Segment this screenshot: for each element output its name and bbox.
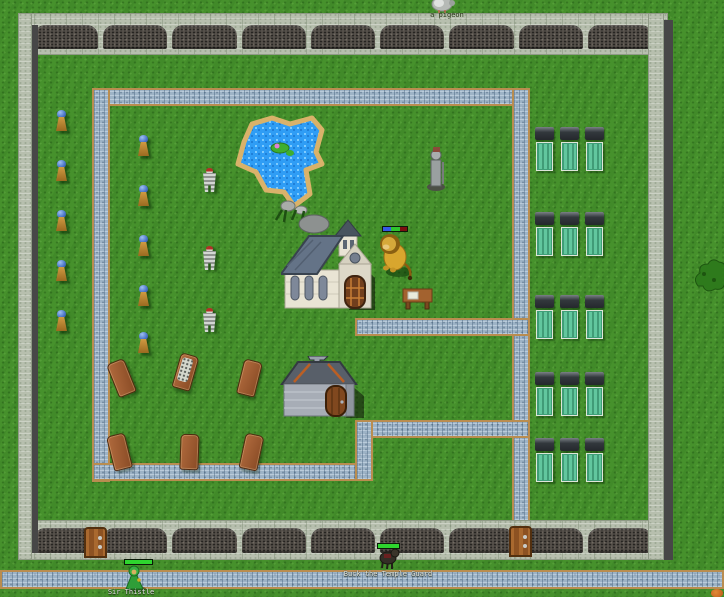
player-face	[132, 570, 137, 575]
npc-saddle	[384, 554, 391, 558]
bed-sprite[interactable]	[559, 438, 580, 483]
lion-paw	[383, 266, 389, 271]
lion-sprite[interactable]	[376, 228, 418, 282]
skeleton-warrior-sprite[interactable]	[202, 308, 217, 332]
coffin-open-sprite[interactable]	[171, 352, 199, 392]
coffin-sprite[interactable]	[106, 432, 133, 472]
guard-sprite[interactable]	[55, 210, 68, 231]
bed-sprite[interactable]	[584, 438, 605, 483]
coffin-sprite[interactable]	[106, 358, 137, 398]
player-hp-bar	[124, 559, 153, 565]
lion-paw	[390, 268, 396, 273]
npc-head	[391, 549, 399, 557]
small-orange-creature[interactable]	[711, 589, 723, 597]
bed-sprite[interactable]	[534, 127, 555, 172]
coffin-sprite[interactable]	[236, 358, 263, 398]
guard-sprite[interactable]	[55, 310, 68, 331]
bed-sprite[interactable]	[584, 295, 605, 340]
arched-window	[291, 276, 299, 300]
guard-sprite[interactable]	[55, 160, 68, 181]
bed-sprite[interactable]	[584, 372, 605, 417]
bed-sprite[interactable]	[534, 212, 555, 257]
guard-sprite[interactable]	[137, 235, 150, 256]
coffin-sprite[interactable]	[179, 434, 199, 471]
bed-sprite[interactable]	[559, 295, 580, 340]
statue-body	[431, 160, 441, 186]
arched-window	[319, 276, 327, 300]
building-wall-side	[346, 384, 354, 416]
skeleton-warrior-sprite[interactable]	[202, 168, 217, 192]
guard-sprite[interactable]	[55, 260, 68, 281]
lion-muzzle	[383, 245, 390, 250]
lion-hp-bar	[382, 226, 408, 232]
bed-sprite[interactable]	[559, 127, 580, 172]
bed-sprite[interactable]	[534, 438, 555, 483]
npc-hp-bar	[377, 543, 400, 549]
npc-name-label: Buck the Temple Guard	[344, 570, 433, 578]
bed-sprite[interactable]	[559, 372, 580, 417]
statue-crest	[433, 147, 440, 152]
rose-window	[350, 253, 360, 263]
building-roof	[282, 362, 356, 384]
pigeon-head	[449, 0, 455, 6]
bed-sprite[interactable]	[559, 212, 580, 257]
temple-building[interactable]	[281, 218, 377, 314]
guard-sprite[interactable]	[137, 332, 150, 353]
table[interactable]	[402, 286, 434, 312]
guard-sprite[interactable]	[55, 110, 68, 131]
arched-window	[305, 276, 313, 300]
tower-roof	[335, 220, 361, 236]
player-name-label: Sir Thistle	[108, 588, 154, 596]
guard-sprite[interactable]	[137, 285, 150, 306]
paper	[408, 292, 418, 299]
game-viewport: a pigeon Buck the Temple Guard Sir Thist…	[0, 0, 724, 597]
tower-window	[343, 240, 347, 249]
bed-sprite[interactable]	[534, 372, 555, 417]
guard-sprite[interactable]	[137, 135, 150, 156]
coffin-sprite[interactable]	[238, 432, 264, 471]
south-wall-door-east[interactable]	[509, 526, 532, 557]
bed-sprite[interactable]	[584, 127, 605, 172]
skeleton-warrior-sprite[interactable]	[202, 246, 217, 270]
bed-sprite[interactable]	[584, 212, 605, 257]
player-item	[137, 578, 141, 582]
stone-building[interactable]	[280, 356, 368, 422]
creature-name-label: a pigeon	[430, 11, 464, 19]
door-handle	[340, 400, 343, 403]
bed-sprite[interactable]	[534, 295, 555, 340]
statue[interactable]	[424, 144, 448, 192]
lion-tail-tip	[408, 276, 412, 280]
npc-creature-sprite[interactable]	[377, 548, 401, 570]
south-wall-door-west[interactable]	[84, 527, 107, 558]
guard-sprite[interactable]	[137, 185, 150, 206]
temple-door[interactable]	[345, 276, 365, 308]
